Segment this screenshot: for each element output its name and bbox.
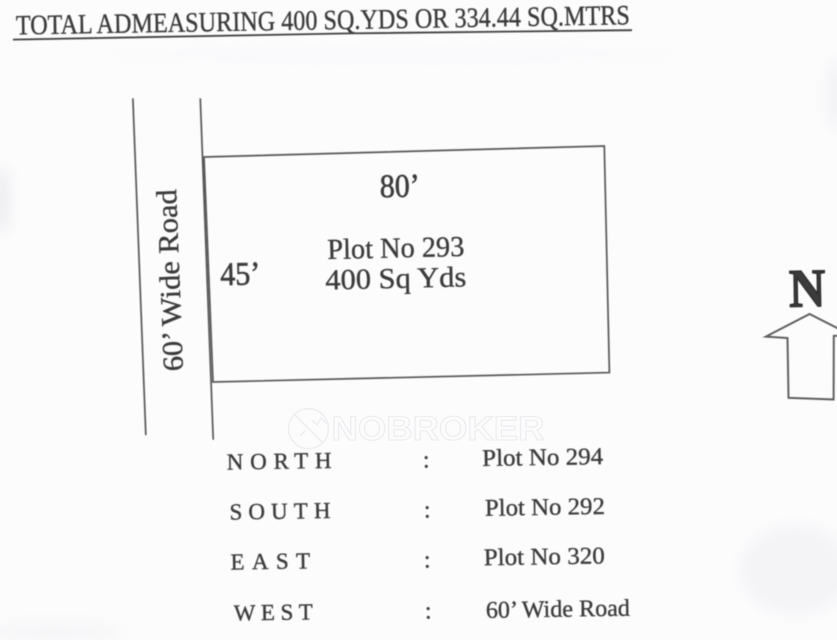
svg-text:60’ Wide Road: 60’ Wide Road	[486, 596, 630, 624]
svg-text::: :	[424, 497, 431, 523]
svg-text:Plot No 320: Plot No 320	[484, 543, 605, 571]
svg-text:80’: 80’	[379, 168, 420, 205]
svg-text::: :	[424, 547, 431, 573]
svg-text:400 Sq Yds: 400 Sq Yds	[325, 261, 467, 296]
svg-text:Plot No 292: Plot No 292	[485, 494, 605, 522]
svg-text::: :	[423, 447, 430, 473]
svg-text::: :	[425, 598, 432, 624]
svg-text:Plot No 293: Plot No 293	[327, 231, 465, 266]
svg-text:NORTH: NORTH	[227, 448, 332, 475]
svg-text:NOBROKER: NOBROKER	[332, 410, 545, 448]
svg-text:N: N	[789, 259, 826, 319]
svg-text:WEST: WEST	[234, 599, 313, 625]
svg-text:Plot No 294: Plot No 294	[482, 444, 603, 472]
svg-text:45’: 45’	[220, 256, 261, 293]
